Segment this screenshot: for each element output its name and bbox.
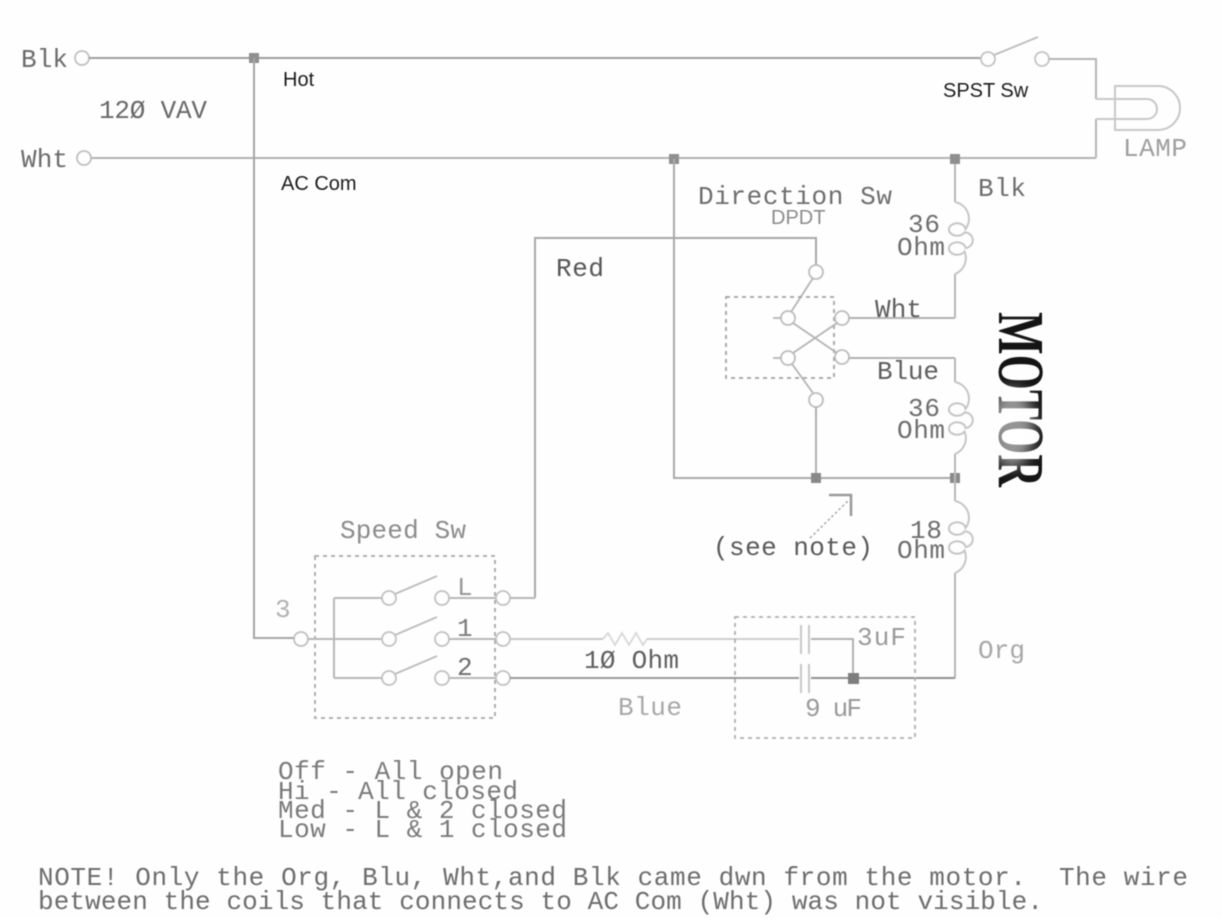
- svg-text:DPDT: DPDT: [771, 207, 825, 229]
- svg-text:AC Com: AC Com: [281, 173, 357, 195]
- svg-text:Blue: Blue: [877, 357, 939, 387]
- svg-text:Ohm: Ohm: [897, 233, 945, 263]
- svg-text:between the coils that connect: between the coils that connects to AC Co…: [38, 887, 1043, 917]
- svg-text:3uF: 3uF: [857, 623, 906, 653]
- svg-text:Wht: Wht: [21, 145, 68, 175]
- svg-text:LAMP: LAMP: [1123, 134, 1187, 164]
- svg-text:Blue: Blue: [618, 693, 682, 723]
- svg-text:SPST Sw: SPST Sw: [943, 80, 1029, 102]
- svg-text:3: 3: [275, 595, 291, 625]
- svg-text:Hot: Hot: [283, 69, 315, 91]
- svg-text:9 uF: 9 uF: [805, 694, 862, 724]
- svg-text:Blk: Blk: [978, 174, 1026, 204]
- svg-text:Blk: Blk: [21, 45, 68, 75]
- svg-text:12Ø VAV: 12Ø VAV: [99, 96, 207, 126]
- svg-text:Speed Sw: Speed Sw: [340, 516, 466, 546]
- svg-text:1Ø Ohm: 1Ø Ohm: [584, 646, 679, 676]
- svg-text:Red: Red: [556, 254, 604, 284]
- svg-text:Low - L & 1 closed: Low - L & 1 closed: [278, 815, 567, 845]
- svg-text:Wht: Wht: [875, 295, 922, 325]
- svg-text:Org: Org: [978, 636, 1025, 666]
- svg-text:Ohm: Ohm: [897, 416, 945, 446]
- svg-text:(see note): (see note): [713, 533, 873, 563]
- svg-text:Ohm: Ohm: [897, 536, 945, 566]
